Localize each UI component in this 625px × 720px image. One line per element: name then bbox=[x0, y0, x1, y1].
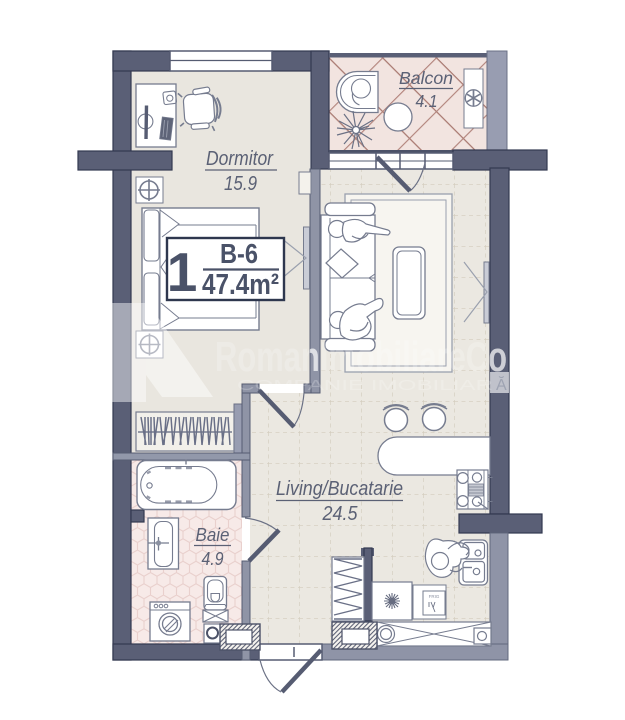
svg-text:B-6: B-6 bbox=[220, 238, 258, 269]
svg-text:Balcon: Balcon bbox=[399, 68, 453, 88]
svg-text:Baie: Baie bbox=[196, 524, 230, 545]
svg-text:4.9: 4.9 bbox=[202, 548, 224, 569]
svg-text:15.9: 15.9 bbox=[224, 173, 257, 195]
svg-text:4.1: 4.1 bbox=[416, 91, 438, 111]
svg-text:COMPANIE IMOBILIAR: COMPANIE IMOBILIAR bbox=[237, 377, 493, 394]
svg-text:47.4m²: 47.4m² bbox=[202, 269, 279, 301]
svg-text:Living/Bucatarie: Living/Bucatarie bbox=[276, 478, 403, 500]
svg-text:24.5: 24.5 bbox=[322, 503, 359, 525]
svg-text:Ă: Ă bbox=[496, 375, 507, 394]
svg-text:Dormitor: Dormitor bbox=[206, 148, 274, 170]
svg-text:1: 1 bbox=[167, 241, 198, 303]
svg-text:FRIG: FRIG bbox=[429, 594, 440, 599]
svg-text:RomanImobiliareCo: RomanImobiliareCo bbox=[215, 333, 507, 380]
